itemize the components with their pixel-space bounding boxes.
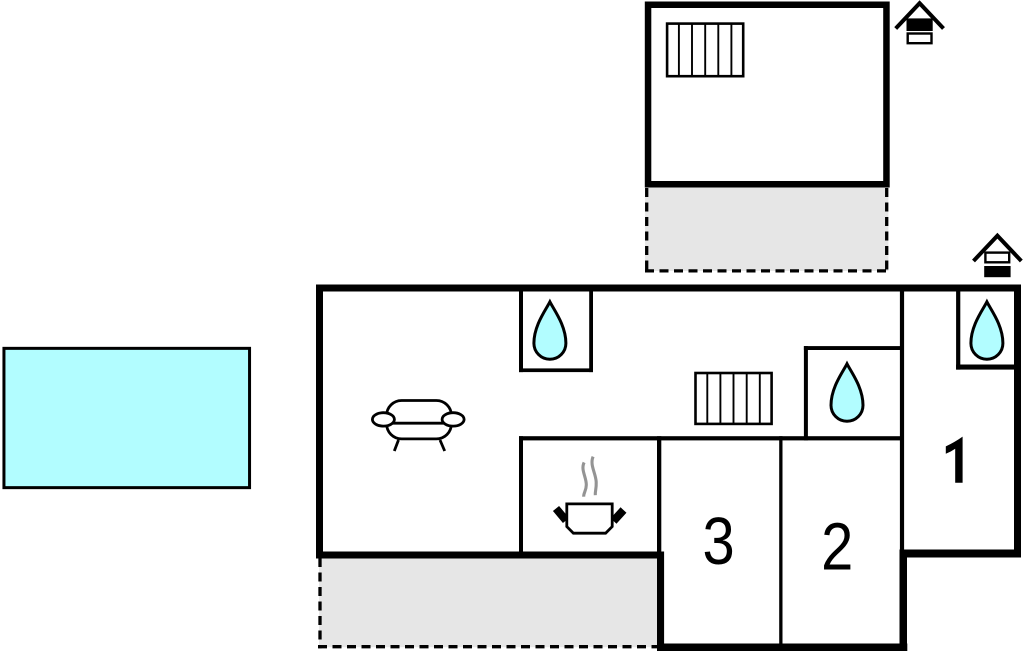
svg-text:2: 2: [821, 511, 853, 585]
svg-text:3: 3: [703, 505, 735, 579]
